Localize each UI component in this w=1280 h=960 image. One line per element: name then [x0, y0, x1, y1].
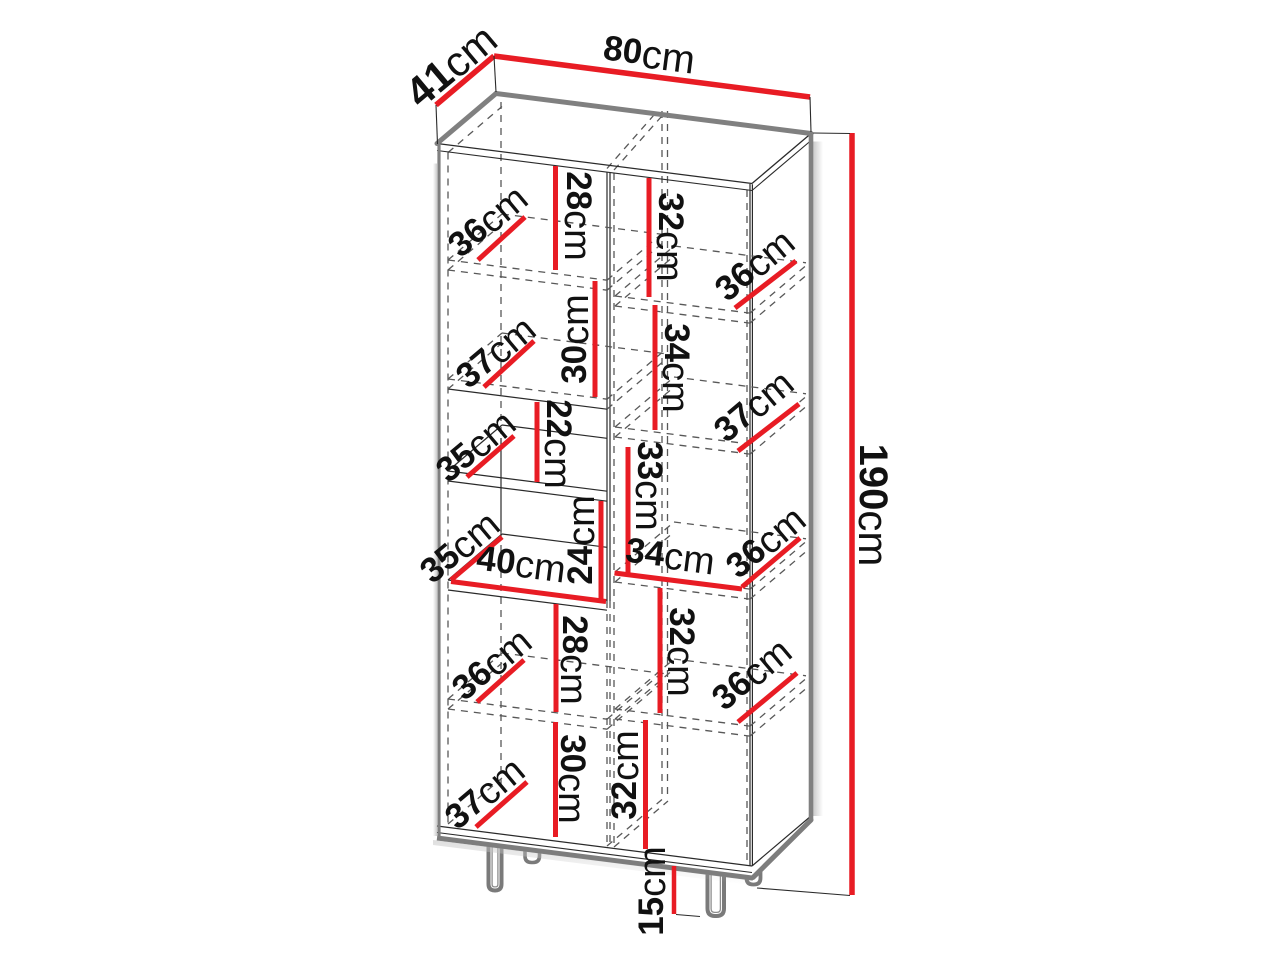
svg-text:32cm: 32cm — [659, 607, 701, 697]
svg-text:33cm: 33cm — [627, 441, 669, 531]
svg-text:34cm: 34cm — [654, 323, 696, 413]
svg-text:36cm: 36cm — [445, 620, 541, 710]
svg-text:28cm: 28cm — [552, 615, 594, 705]
svg-text:28cm: 28cm — [556, 171, 598, 261]
svg-text:37cm: 37cm — [449, 308, 545, 398]
svg-text:37cm: 37cm — [438, 749, 534, 839]
svg-text:30cm: 30cm — [550, 734, 592, 824]
svg-text:30cm: 30cm — [555, 294, 597, 384]
svg-text:32cm: 32cm — [605, 730, 647, 820]
svg-text:24cm: 24cm — [561, 495, 603, 585]
svg-text:32cm: 32cm — [648, 192, 690, 282]
svg-text:15cm: 15cm — [632, 846, 674, 936]
svg-text:190cm: 190cm — [850, 444, 897, 567]
svg-text:40cm: 40cm — [474, 539, 568, 592]
svg-text:22cm: 22cm — [536, 399, 578, 489]
svg-text:36cm: 36cm — [719, 498, 815, 588]
